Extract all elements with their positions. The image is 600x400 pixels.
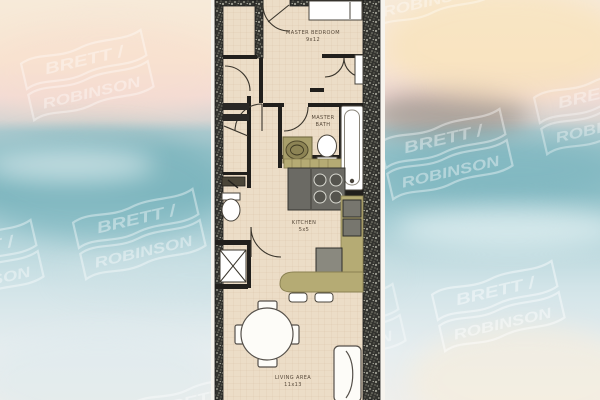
dining-table (241, 308, 293, 360)
entry-divider-wall (255, 0, 263, 58)
label-master-bath-1: MASTER (312, 115, 335, 121)
dresser (355, 55, 363, 84)
counter-strip (284, 159, 341, 168)
toilet-bowl (318, 135, 337, 157)
washer-dryer-closet (220, 250, 246, 282)
second-bath-toilet (222, 199, 240, 221)
label-kitchen: KITCHEN (292, 220, 316, 226)
label-living-area: LIVING AREA (275, 375, 311, 381)
screenshot-root: BRETT / ROBINSON (0, 0, 600, 400)
label-master-bath-2: BATH (316, 122, 331, 128)
vanity-sink (286, 141, 308, 159)
label-master-bedroom: MASTER BEDROOM (286, 30, 340, 36)
breakfast-bar (280, 272, 363, 292)
exterior-wall-right (363, 0, 380, 400)
label-living-area-dims: 11x13 (284, 382, 302, 388)
floorplan: MASTER BEDROOM 9x12 MASTER BATH KITCHEN … (211, 0, 385, 400)
bed (309, 1, 362, 20)
label-kitchen-dims: 5x5 (299, 227, 310, 233)
label-master-bedroom-dims: 9x12 (306, 37, 320, 43)
sofa (334, 346, 361, 400)
